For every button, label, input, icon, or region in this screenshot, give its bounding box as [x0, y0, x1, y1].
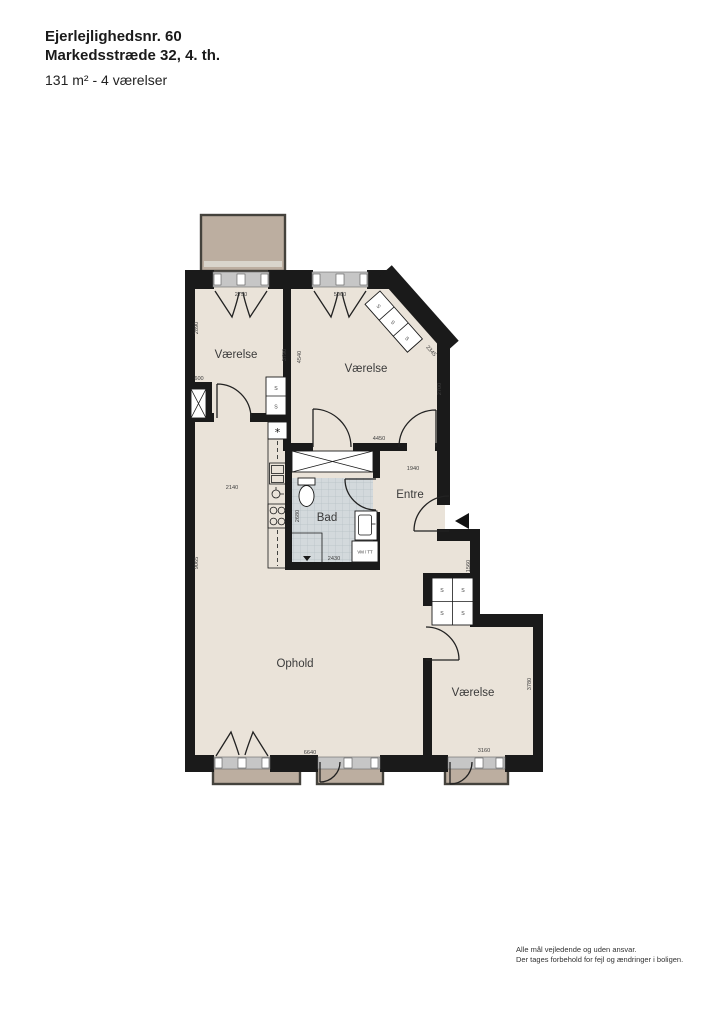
dim-ne-left: 4540: [297, 351, 303, 363]
dim-elevator: 600: [194, 376, 203, 382]
closet-s-label: S: [461, 588, 465, 594]
disclaimer-line-2: Der tages forbehold for fejl og ændringe…: [516, 955, 683, 965]
room-label-bad: Bad: [317, 512, 337, 524]
room-label-vaerelse-se: Værelse: [452, 687, 495, 699]
room-label-vaerelse-nw: Værelse: [215, 349, 258, 361]
dim-se-bottom: 3160: [478, 748, 490, 754]
room-label-ophold: Ophold: [276, 658, 313, 670]
dim-nw-left: 2890: [194, 322, 200, 334]
dim-closet-niche: 1560: [466, 560, 472, 572]
closet-s-label: S: [274, 405, 278, 411]
closet-s-label: S: [440, 611, 444, 617]
disclaimer-line-1: Alle mål vejledende og uden ansvar.: [516, 945, 683, 955]
floorplan-page: Ejerlejlighedsnr. 60 Markedsstræde 32, 4…: [0, 0, 724, 1024]
dim-nw-right: 3790: [282, 349, 288, 361]
room-label-vaerelse-ne: Værelse: [345, 363, 388, 375]
dim-window-nw: 2750: [235, 292, 247, 298]
dim-bad-left: 2680: [295, 510, 301, 522]
dim-entre: 1940: [407, 466, 419, 472]
wardrobe-cabinet: [292, 451, 373, 472]
bath-sink: [355, 511, 377, 540]
dim-kitchen: 2140: [226, 485, 238, 491]
dim-se-right: 3780: [527, 678, 533, 690]
closet-s-label: S: [440, 588, 444, 594]
disclaimer: Alle mål vejledende og uden ansvar. Der …: [516, 945, 683, 965]
elevator-shaft: [191, 389, 206, 418]
closet-block-se: S S S S: [432, 578, 473, 625]
closet-s-label: S: [274, 386, 278, 392]
entrance-arrow-icon: [455, 513, 469, 529]
kitchen-symbol: *: [275, 426, 281, 439]
closet-nw: S S: [266, 377, 286, 415]
floorplan-drawing: VM / TT *: [0, 0, 724, 1024]
dim-bad-bottom: 2430: [328, 556, 340, 562]
dim-ne-right: 2700: [437, 383, 443, 395]
dim-ophold-bottom: 6640: [304, 750, 316, 756]
room-label-entre: Entre: [396, 489, 424, 501]
washer-dryer: VM / TT: [352, 541, 378, 562]
balcony-north: [201, 215, 285, 271]
dim-ne-bottom: 4450: [373, 436, 385, 442]
dim-left-wall: 9065: [194, 557, 200, 569]
closet-s-label: S: [461, 611, 465, 617]
dim-window-ne: 5000: [334, 292, 346, 298]
washer-dryer-label: VM / TT: [357, 550, 373, 555]
toilet: [298, 478, 315, 507]
